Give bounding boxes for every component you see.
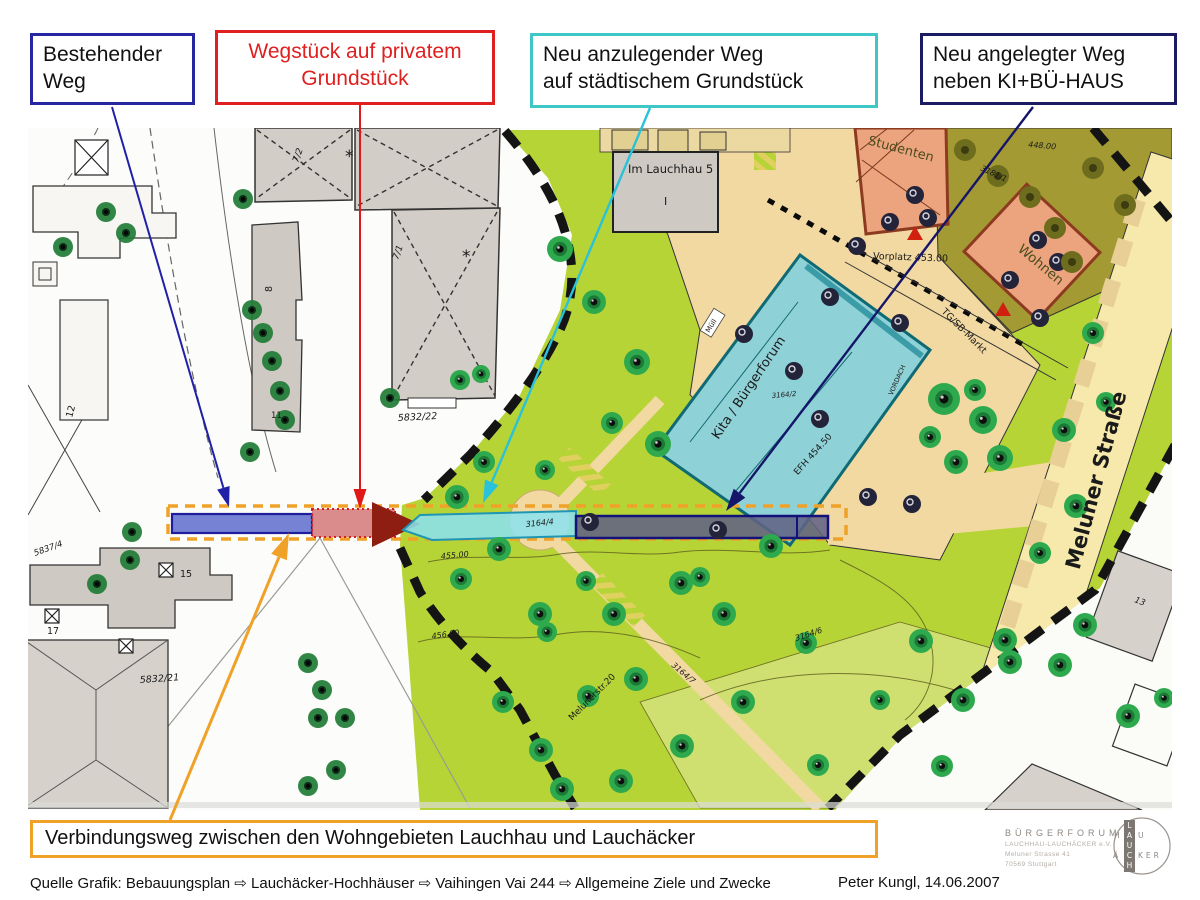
street-tree [919,209,937,227]
callout-verbindungsweg: Verbindungsweg zwischen den Wohngebieten… [30,820,878,858]
tree [1052,418,1076,442]
tree [242,300,262,320]
callout-text: Weg [43,69,182,96]
tree [492,691,514,713]
callout-text: Neu angelegter Weg [933,42,1164,69]
map-label: * [345,147,354,167]
tree [450,568,472,590]
tree [1082,157,1104,179]
small-building [700,132,726,150]
tree [312,680,332,700]
tree [601,412,623,434]
tree [535,460,555,480]
small-building [612,130,648,150]
tree [270,381,290,401]
map-label: I [664,195,667,208]
svg-text:Ä: Ä [1113,851,1121,860]
tree [1019,186,1041,208]
callout-text: neben KI+BÜ-HAUS [933,69,1164,96]
tree [550,777,574,801]
street-tree [581,513,599,531]
tree [987,445,1013,471]
tree [582,290,606,314]
map: Im Lauchhau 5IStudentenWohnen3181/1448.0… [24,128,1200,810]
tree [87,574,107,594]
tree [529,738,553,762]
tree [1114,194,1136,216]
tree [609,769,633,793]
tree [116,223,136,243]
tree [1073,613,1097,637]
street-tree [848,237,866,255]
callout-text: Bestehender [43,42,182,69]
tree [645,431,671,457]
author-date: Peter Kungl, 14.06.2007 [838,874,1000,891]
tree [951,688,975,712]
tree [870,690,890,710]
tree [380,388,400,408]
tree [576,571,596,591]
new-kibu-way-segment [576,516,828,538]
street-tree [903,495,921,513]
street-tree [1001,271,1019,289]
callout-text: Grundstück [228,66,482,93]
map-label: Im Lauchhau 5 [628,162,713,176]
tree [326,760,346,780]
tree [473,451,495,473]
street-tree [735,325,753,343]
street-tree [891,314,909,332]
callout-text: Neu anzulegender Weg [543,42,865,69]
tree [690,567,710,587]
tree [96,202,116,222]
tree [731,690,755,714]
svg-text:H: H [1114,831,1123,840]
street-tree [785,362,803,380]
tree [669,571,693,595]
tree [240,442,260,462]
tree [308,708,328,728]
tree [487,537,511,561]
scan-edge [28,802,1172,808]
callout-new-kibu-way: Neu angelegter Weg neben KI+BÜ-HAUS [920,33,1177,105]
map-label: * [462,247,471,267]
callout-new-city-way: Neu anzulegender Weg auf städtischem Gru… [530,33,878,108]
street-tree [881,213,899,231]
tree [547,236,573,262]
tree [807,754,829,776]
logo-cross-icon: LAU CH HU ÄKER [1102,808,1192,888]
street-tree [709,521,727,539]
map-canvas: Im Lauchhau 5IStudentenWohnen3181/1448.0… [0,0,1200,900]
tree [964,379,986,401]
street-tree [821,288,839,306]
tree [969,406,997,434]
tree [1048,653,1072,677]
street-tree [906,186,924,204]
tree [53,237,73,257]
tree [122,522,142,542]
svg-text:C: C [1127,851,1132,860]
tree [1116,704,1140,728]
tree [712,602,736,626]
tree [253,323,273,343]
map-label: 8 [264,286,275,292]
tree [670,734,694,758]
svg-text:A: A [1127,831,1133,840]
tree [1029,542,1051,564]
tree [993,628,1017,652]
tree [919,426,941,448]
callout-private-section: Wegstück auf privatem Grundstück [215,30,495,105]
tree [1061,251,1083,273]
callout-existing-way: Bestehender Weg [30,33,195,105]
tree [944,450,968,474]
small-building [658,130,688,152]
map-label: 11 [271,411,282,421]
tree [928,383,960,415]
street-tree [1031,309,1049,327]
callout-text: Verbindungsweg zwischen den Wohngebieten… [45,826,695,852]
tree [537,622,557,642]
tree [1154,688,1174,708]
svg-text:U: U [1127,841,1133,850]
tree [335,708,355,728]
svg-text:KER: KER [1138,851,1162,860]
tree [931,755,953,777]
tree [298,653,318,673]
tree [445,485,469,509]
tree [954,139,976,161]
tree [1082,322,1104,344]
map-label: 15 [180,569,192,580]
callout-text: Wegstück auf privatem [228,39,482,66]
tree [909,629,933,653]
tree [298,776,318,796]
tree [233,189,253,209]
callout-text: auf städtischem Grundstück [543,69,865,96]
tree [624,349,650,375]
tree [262,351,282,371]
street-tree [811,410,829,428]
existing-way-segment [172,514,312,533]
tree [759,534,783,558]
svg-text:H: H [1127,861,1133,870]
map-label: 5832/22 [398,411,438,424]
tree [624,667,648,691]
tree [1044,217,1066,239]
tree [998,650,1022,674]
source-caption: Quelle Grafik: Bebauungsplan ⇨ Lauchäcke… [30,874,771,892]
street-tree [859,488,877,506]
tree [472,365,490,383]
slide: Im Lauchhau 5IStudentenWohnen3181/1448.0… [0,0,1200,900]
map-label: 17 [47,626,59,637]
tree [450,370,470,390]
tree [120,550,140,570]
tree [602,602,626,626]
svg-text:U: U [1138,831,1147,840]
